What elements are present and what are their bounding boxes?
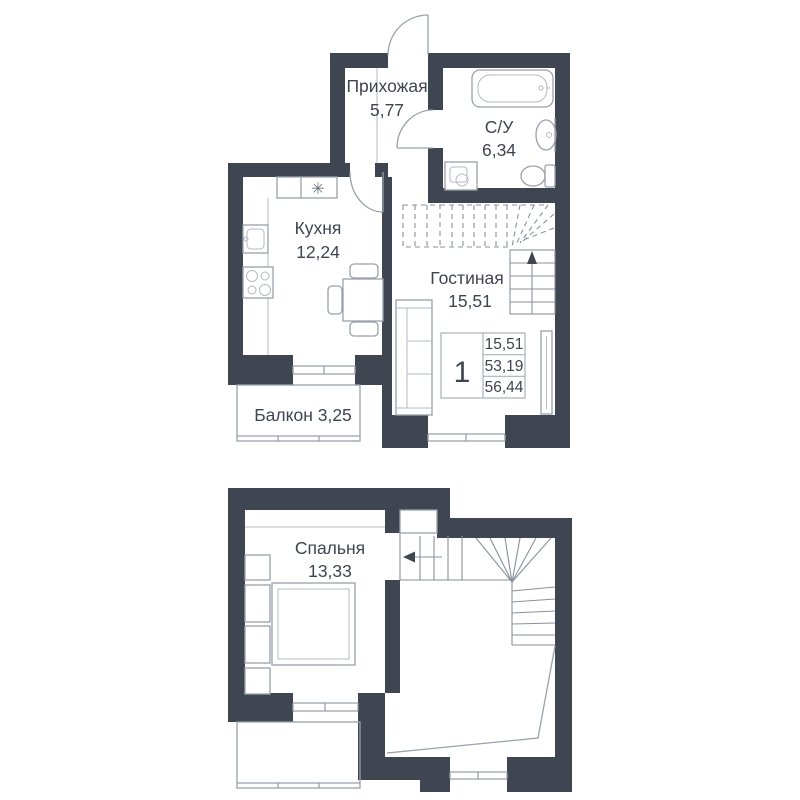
room-area-label: 12,24	[296, 242, 340, 262]
wall-segment	[428, 53, 570, 68]
area-value: 53,19	[485, 358, 524, 375]
wall-segment	[228, 177, 243, 355]
sofa-icon	[396, 300, 432, 415]
wall-segment	[428, 68, 443, 110]
wall-segment	[450, 518, 572, 538]
cabinet-icon	[245, 668, 270, 694]
room-living: Гостиная 15,51	[430, 268, 503, 311]
rooms-count: 1	[454, 356, 471, 389]
room-area-label: 15,51	[448, 291, 492, 311]
room-area-label: 13,33	[308, 561, 352, 581]
room-balcony-label: Балкон 3,25	[254, 405, 352, 425]
nightstand-icon	[245, 585, 270, 622]
wall-segment	[555, 538, 572, 792]
wall-segment	[420, 757, 450, 792]
nightstand-icon	[245, 626, 270, 663]
wall-segment	[228, 163, 350, 177]
wall-segment	[505, 415, 570, 448]
room-bedroom: Спальня 13,33	[295, 538, 365, 581]
lower-balcony-glazing	[237, 722, 360, 788]
wall-segment	[330, 68, 345, 177]
lower-room-window	[450, 772, 507, 779]
wall-segment	[228, 355, 293, 385]
total-area-value: 56,44	[485, 379, 524, 396]
sloped-ceiling-line	[387, 646, 555, 753]
room-label: Прихожая	[346, 76, 427, 96]
stairs-lower-flight	[510, 250, 555, 314]
wall-segment	[228, 510, 245, 722]
vent-icon: ✳	[311, 181, 324, 198]
wall-segment	[382, 355, 392, 415]
entrance-door	[388, 15, 428, 55]
room-label: Спальня	[295, 538, 365, 558]
bed-icon	[272, 583, 355, 665]
wall-segment	[555, 68, 570, 448]
bathroom-sink-icon	[536, 118, 556, 152]
room-kitchen: Кухня 12,24	[295, 218, 342, 262]
toilet-icon	[521, 165, 555, 187]
kitchen-counter	[268, 177, 337, 355]
wall-segment	[382, 415, 428, 448]
stove-icon	[243, 267, 273, 298]
stairs-upper-flight-dashed	[403, 205, 554, 247]
room-label: Гостиная	[430, 268, 503, 288]
wall-segment	[358, 757, 420, 780]
wall-segment	[228, 693, 293, 722]
dining-table-icon	[328, 264, 383, 336]
wall-segment	[375, 163, 388, 177]
bedroom-balcony-window	[293, 703, 358, 711]
room-area-label: 6,34	[482, 140, 516, 160]
apartment-info-table: 1 15,51 53,19 56,44	[441, 333, 525, 398]
kitchen-door	[350, 172, 383, 212]
room-area-label: 5,77	[370, 100, 404, 120]
radiator-icon	[541, 331, 552, 414]
stairs-up-arrow-icon	[527, 251, 537, 264]
room-hallway: Прихожая 5,77	[346, 76, 427, 120]
kitchen-balcony-window	[293, 366, 355, 374]
wall-segment	[437, 510, 450, 538]
stairs-level2	[400, 533, 555, 645]
wall-segment	[228, 488, 450, 510]
dresser-icon	[245, 555, 270, 580]
washing-machine-icon	[445, 162, 477, 190]
room-bathroom: С/У 6,34	[482, 117, 516, 160]
bathtub-icon	[472, 70, 553, 107]
duplex-floor-plan: ✳	[0, 0, 800, 800]
shaft-niche	[400, 510, 437, 533]
wall-segment	[385, 580, 400, 693]
living-room-window	[428, 434, 505, 441]
floor-plan-page: ✳	[0, 0, 800, 800]
wall-segment	[330, 53, 388, 68]
wall-segment	[428, 148, 443, 188]
kitchen-sink-icon	[243, 225, 268, 253]
stairs-entry-arrow-icon	[403, 552, 415, 563]
wall-segment	[385, 510, 400, 533]
room-label: Кухня	[295, 218, 342, 238]
wall-segment	[507, 757, 572, 792]
living-area-value: 15,51	[485, 336, 524, 353]
room-label: С/У	[485, 117, 515, 137]
